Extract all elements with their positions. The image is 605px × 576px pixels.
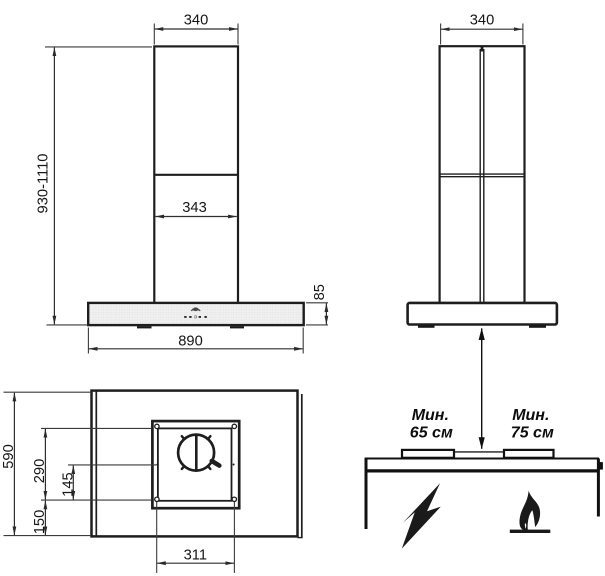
svg-text:930-1110: 930-1110	[36, 154, 52, 214]
svg-text:343: 343	[182, 200, 207, 216]
svg-text:85: 85	[312, 284, 328, 300]
svg-text:290: 290	[32, 459, 48, 484]
svg-text:75 см: 75 см	[511, 424, 554, 441]
svg-text:Мин.: Мин.	[412, 407, 449, 424]
svg-text:145: 145	[61, 472, 77, 497]
svg-text:590: 590	[1, 444, 17, 469]
svg-text:340: 340	[470, 13, 495, 29]
svg-text:65 см: 65 см	[410, 424, 453, 441]
svg-text:890: 890	[178, 334, 203, 350]
svg-text:340: 340	[184, 12, 209, 28]
svg-text:311: 311	[184, 547, 207, 563]
svg-text:150: 150	[32, 510, 48, 535]
svg-text:Мин.: Мин.	[512, 407, 549, 424]
